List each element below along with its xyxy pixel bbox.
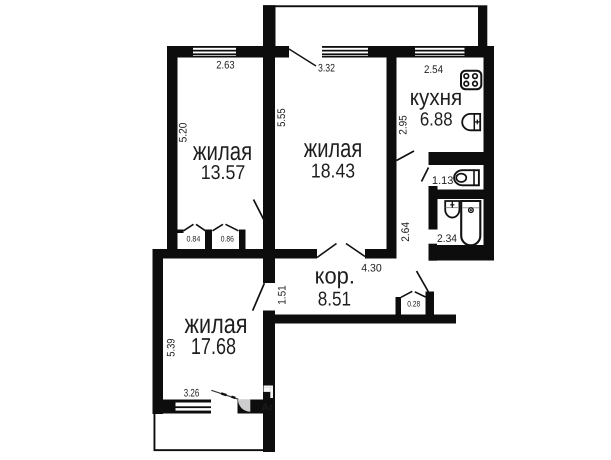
svg-text:2.95: 2.95 [397, 115, 409, 135]
svg-text:2.64: 2.64 [400, 222, 412, 242]
svg-text:17.68: 17.68 [191, 333, 236, 359]
svg-text:кухня: кухня [410, 84, 462, 110]
svg-text:2.34: 2.34 [437, 233, 457, 245]
svg-text:1.51: 1.51 [276, 285, 288, 305]
svg-text:0.86: 0.86 [221, 234, 235, 243]
svg-text:5.55: 5.55 [276, 108, 288, 127]
svg-text:5.39: 5.39 [165, 338, 177, 356]
svg-text:5.20: 5.20 [178, 123, 190, 143]
svg-text:1.13: 1.13 [432, 175, 454, 187]
svg-text:3.26: 3.26 [184, 388, 200, 400]
svg-text:0.28: 0.28 [407, 299, 420, 308]
svg-text:0.84: 0.84 [186, 234, 200, 243]
svg-text:6.88: 6.88 [420, 110, 453, 131]
svg-text:18.43: 18.43 [311, 161, 355, 183]
svg-text:8.51: 8.51 [318, 289, 351, 311]
svg-text:2.54: 2.54 [424, 64, 443, 76]
svg-text:жилая: жилая [304, 133, 363, 163]
svg-text:3.32: 3.32 [318, 63, 335, 75]
svg-text:2.63: 2.63 [216, 60, 234, 72]
svg-text:Аг: Аг [262, 402, 275, 414]
svg-text:13.57: 13.57 [201, 162, 246, 184]
svg-text:4.30: 4.30 [361, 263, 382, 275]
svg-text:кор.: кор. [315, 263, 355, 289]
